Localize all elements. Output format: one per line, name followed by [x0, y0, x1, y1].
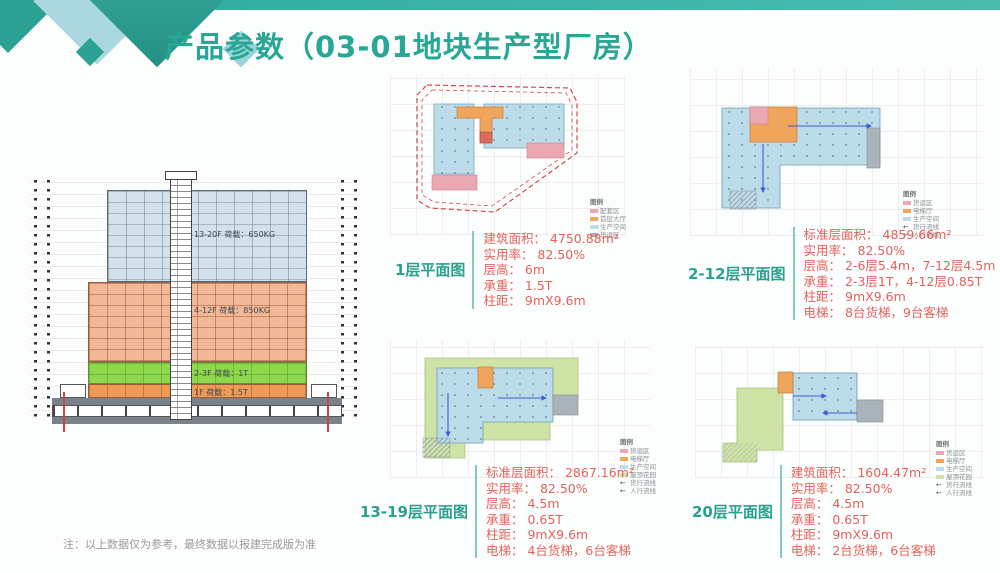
- legend-item: ←货行流线: [936, 481, 972, 489]
- plan4-spec-group: 20层平面图 建筑面积： 1604.47m² 实用率： 82.50% 层高： 4…: [692, 465, 936, 558]
- legend-item: 货运区: [620, 447, 656, 455]
- ground-wing-right: [311, 384, 337, 398]
- spec-line: 柱距： 9mX9.6m: [483, 293, 618, 309]
- orange-swatch-icon: [936, 459, 944, 463]
- section-band-label: 4-12F 荷载：850KG: [194, 305, 270, 316]
- plan3-floor-plan: [388, 338, 650, 480]
- pink-swatch-icon: [903, 201, 911, 205]
- flow-arrow-icon: ←: [936, 483, 944, 487]
- annex-block: [423, 438, 450, 457]
- spec-line: 实用率： 82.50%: [483, 247, 618, 263]
- legend-item: 货运区: [903, 199, 939, 207]
- spec-line: 层高： 4.5m: [486, 496, 634, 512]
- spec-line: 柱距： 9mX9.6m: [804, 289, 996, 305]
- plan3-spec-group: 13-19层平面图 标准层面积： 2867.16m² 实用率： 82.50% 层…: [360, 465, 634, 558]
- support-area: [432, 175, 477, 190]
- spec-line: 实用率： 82.50%: [791, 481, 936, 497]
- section-band-13-20f: 13-20F 荷载：650KG: [107, 190, 307, 282]
- elevator-core: [778, 372, 793, 393]
- legend-item: 生产空间: [936, 465, 972, 473]
- plan3-label: 13-19层平面图: [360, 501, 468, 522]
- spec-line: 层高： 6m: [483, 262, 618, 278]
- legend-item: 生产空间: [903, 215, 939, 223]
- plan1-spec-group: 1层平面图 建筑面积： 4750.88m² 实用率： 82.50% 层高： 6m…: [395, 231, 619, 309]
- legend-item: 配套区: [590, 207, 626, 215]
- legend-item: 电梯厅: [620, 455, 656, 463]
- legend-item: 生产空间: [590, 223, 626, 231]
- legend-title: 图例: [936, 440, 972, 448]
- spec-line: 承重： 0.65T: [791, 512, 936, 528]
- support-area: [527, 143, 564, 158]
- section-band-2-3f: 2-3F 荷载：1T: [88, 362, 307, 384]
- dimension-ticks-left: [47, 180, 50, 420]
- plan3-specs: 标准层面积： 2867.16m² 实用率： 82.50% 层高： 4.5m 承重…: [475, 465, 634, 558]
- spec-line: 建筑面积： 4750.88m²: [483, 231, 618, 247]
- footnote: 注：以上数据仅为参考，最终数据以报建完成版为准: [63, 536, 316, 552]
- plan2-specs: 标准层面积： 4859.66m² 实用率： 82.50% 层高： 2-6层5.4…: [793, 227, 996, 320]
- section-band-1f: 1F 荷载：1.5T: [88, 384, 307, 398]
- foundation-slab: [52, 417, 342, 424]
- service-block: [553, 395, 578, 415]
- legend-item: 货运区: [936, 449, 972, 457]
- section-band-label: 2-3F 荷载：1T: [194, 368, 248, 379]
- spec-line: 柱距： 9mX9.6m: [486, 527, 634, 543]
- plan4-label: 20层平面图: [692, 501, 773, 522]
- pink-swatch-icon: [590, 209, 598, 213]
- blue-swatch-icon: [936, 467, 944, 471]
- spec-line: 承重： 1.5T: [483, 278, 618, 294]
- building-section-diagram: 13-20F 荷载：650KG 4-12F 荷载：850KG 2-3F 荷载：1…: [30, 170, 360, 455]
- spec-line: 实用率： 82.50%: [804, 243, 996, 259]
- spec-line: 柱距： 9mX9.6m: [791, 527, 936, 543]
- legend-title: 图例: [590, 198, 626, 206]
- plan1-specs: 建筑面积： 4750.88m² 实用率： 82.50% 层高： 6m 承重： 1…: [472, 231, 618, 309]
- annex-block: [723, 443, 757, 462]
- section-band-4-12f: 4-12F 荷载：850KG: [88, 282, 307, 362]
- legend-item: 屋顶花园: [936, 473, 972, 481]
- spec-line: 实用率： 82.50%: [486, 481, 634, 497]
- spec-line: 承重： 0.65T: [486, 512, 634, 528]
- plan4-legend: 图例 货运区 电梯厅 生产空间 屋顶花园 ←货行流线 ←人行流线: [936, 440, 972, 497]
- annex-block: [730, 191, 756, 209]
- service-block: [857, 400, 883, 422]
- dimension-ticks-right: [354, 180, 357, 420]
- red-marker-line-left: [63, 392, 65, 432]
- flow-arrow-icon: ←: [936, 491, 944, 495]
- spec-line: 建筑面积： 1604.47m²: [791, 465, 936, 481]
- spec-line: 标准层面积： 4859.66m²: [804, 227, 996, 243]
- legend-item: 首层大厅: [590, 215, 626, 223]
- red-marker-line-right: [327, 392, 329, 432]
- pink-swatch-icon: [936, 451, 944, 455]
- orange-swatch-icon: [903, 209, 911, 213]
- slide: 产品参数（03-01地块生产型厂房） 13-20F 荷载：650KG 4-12F…: [0, 0, 1000, 573]
- plan2-label: 2-12层平面图: [688, 263, 786, 284]
- legend-item: ←人行流线: [936, 489, 972, 497]
- section-band-label: 1F 荷载：1.5T: [194, 387, 248, 398]
- freight-area: [750, 107, 768, 124]
- legend-item: 电梯厅: [936, 457, 972, 465]
- spec-line: 层高： 4.5m: [791, 496, 936, 512]
- elevator-core-cap: [165, 171, 197, 180]
- legend-title: 图例: [903, 190, 939, 198]
- service-block: [867, 128, 880, 168]
- dimension-ticks-right: [341, 180, 344, 420]
- orange-swatch-icon: [620, 457, 628, 461]
- plan4-specs: 建筑面积： 1604.47m² 实用率： 82.50% 层高： 4.5m 承重：…: [780, 465, 936, 558]
- spec-line: 电梯： 4台货梯，6台客梯: [486, 543, 634, 559]
- blue-swatch-icon: [903, 217, 911, 221]
- spec-line: 电梯： 8台货梯，9台客梯: [804, 305, 996, 321]
- spec-line: 承重： 2-3层1T，4-12层0.85T: [804, 274, 996, 290]
- green-swatch-icon: [936, 475, 944, 479]
- ground-slab: [52, 398, 342, 405]
- elevator-core-shaft: [170, 178, 192, 420]
- page-title: 产品参数（03-01地块生产型厂房）: [165, 24, 653, 66]
- elevator-core: [478, 367, 493, 388]
- spec-line: 标准层面积： 2867.16m²: [486, 465, 634, 481]
- dimension-ticks-left: [34, 180, 37, 420]
- core-stair: [480, 132, 492, 143]
- basement-level: [52, 405, 342, 417]
- spec-line: 电梯： 2台货梯，6台客梯: [791, 543, 936, 559]
- plan2-spec-group: 2-12层平面图 标准层面积： 4859.66m² 实用率： 82.50% 层高…: [688, 227, 995, 320]
- legend-item: 电梯厅: [903, 207, 939, 215]
- blue-swatch-icon: [590, 225, 598, 229]
- legend-title: 图例: [620, 438, 656, 446]
- pink-swatch-icon: [620, 449, 628, 453]
- orange-swatch-icon: [590, 217, 598, 221]
- plan1-label: 1层平面图: [395, 259, 465, 280]
- section-band-label: 13-20F 荷载：650KG: [194, 229, 275, 240]
- spec-line: 层高： 2-6层5.4m，7-12层4.5m: [804, 258, 996, 274]
